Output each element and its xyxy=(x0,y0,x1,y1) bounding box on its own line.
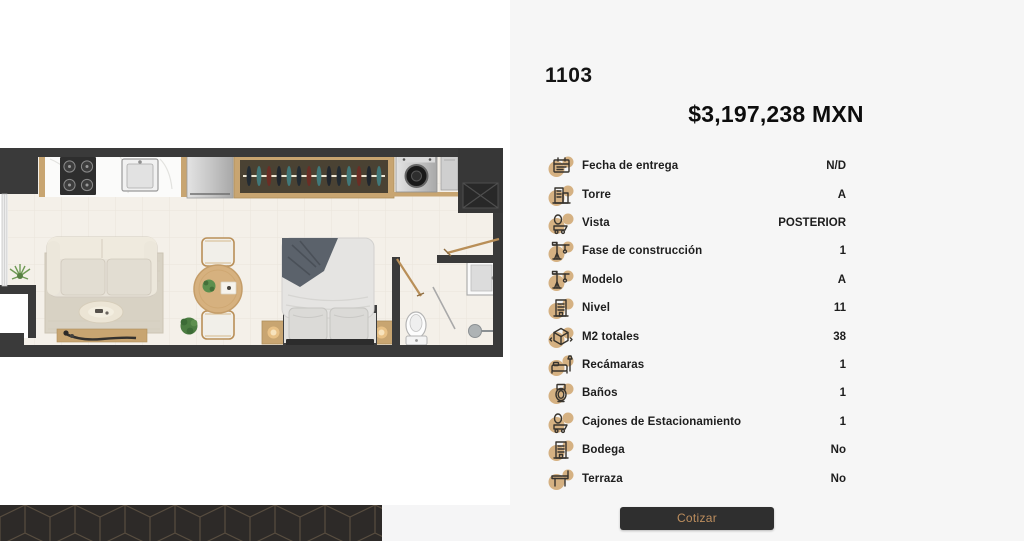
detail-label: M2 totales xyxy=(582,331,833,343)
detail-row: Fecha de entrega N/D xyxy=(548,152,846,180)
calendar-icon xyxy=(548,154,574,178)
details-list: Fecha de entrega N/D Torre A Vista POSTE… xyxy=(548,152,846,493)
detail-value: 38 xyxy=(833,331,846,343)
detail-label: Modelo xyxy=(582,274,838,286)
unit-number: 1103 xyxy=(545,64,1024,87)
detail-value: 1 xyxy=(840,387,846,399)
detail-value: 1 xyxy=(840,245,846,257)
detail-row: Baños 1 xyxy=(548,379,846,407)
detail-label: Vista xyxy=(582,217,778,229)
parking-icon xyxy=(548,410,574,434)
decorative-pattern xyxy=(0,505,382,541)
detail-value: N/D xyxy=(826,160,846,172)
detail-label: Baños xyxy=(582,387,840,399)
building-icon xyxy=(548,296,574,320)
floor-plan-image xyxy=(0,145,505,360)
bottom-gap xyxy=(382,505,510,541)
building-icon xyxy=(548,438,574,462)
detail-row: Vista POSTERIOR xyxy=(548,209,846,237)
detail-label: Cajones de Estacionamiento xyxy=(582,416,840,428)
detail-label: Bodega xyxy=(582,444,831,456)
crane-icon xyxy=(548,268,574,292)
detail-value: 1 xyxy=(840,359,846,371)
toilet-icon xyxy=(548,381,574,405)
detail-label: Terraza xyxy=(582,473,831,485)
detail-row: Bodega No xyxy=(548,436,846,464)
detail-label: Fecha de entrega xyxy=(582,160,826,172)
crane-icon xyxy=(548,239,574,263)
detail-value: 11 xyxy=(834,302,846,314)
detail-value: No xyxy=(831,444,846,456)
area-cube-icon xyxy=(548,325,574,349)
detail-label: Recámaras xyxy=(582,359,840,371)
detail-row: M2 totales 38 xyxy=(548,322,846,350)
detail-row: Torre A xyxy=(548,180,846,208)
detail-row: Modelo A xyxy=(548,266,846,294)
detail-value: POSTERIOR xyxy=(778,217,846,229)
detail-row: Nivel 11 xyxy=(548,294,846,322)
detail-label: Fase de construcción xyxy=(582,245,840,257)
cotizar-button[interactable]: Cotizar xyxy=(620,507,774,530)
detail-row: Terraza No xyxy=(548,464,846,492)
detail-row: Recámaras 1 xyxy=(548,351,846,379)
detail-row: Fase de construcción 1 xyxy=(548,237,846,265)
unit-details-panel: 1103 $3,197,238 MXN Fecha de entrega N/D… xyxy=(510,0,1024,541)
detail-label: Nivel xyxy=(582,302,834,314)
unit-price: $3,197,238 MXN xyxy=(510,101,1024,128)
detail-label: Torre xyxy=(582,189,838,201)
view-icon xyxy=(548,211,574,235)
terrace-icon xyxy=(548,467,574,491)
tower-icon xyxy=(548,183,574,207)
detail-value: A xyxy=(838,274,846,286)
detail-value: No xyxy=(831,473,846,485)
detail-row: Cajones de Estacionamiento 1 xyxy=(548,408,846,436)
floorplan-area xyxy=(0,0,510,541)
detail-value: 1 xyxy=(840,416,846,428)
detail-value: A xyxy=(838,189,846,201)
bed-icon xyxy=(548,353,574,377)
